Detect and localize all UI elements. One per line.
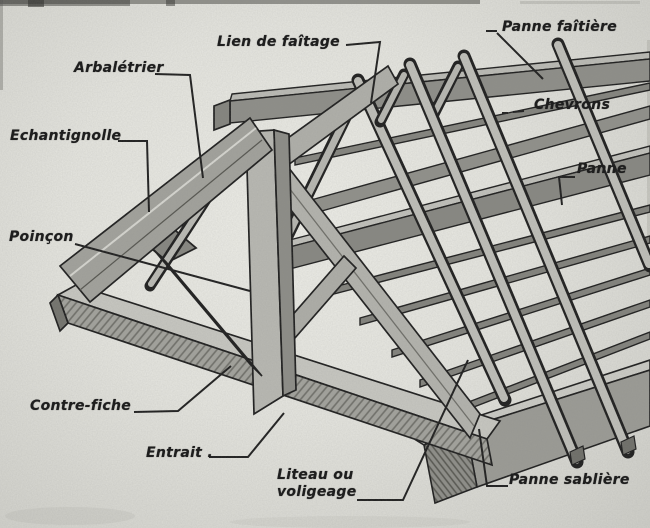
scan-grain-overlay — [0, 0, 650, 528]
label-liteau-line2: voligeage — [277, 484, 357, 500]
label-arbaletrier: Arbalétrier — [74, 60, 164, 77]
roof-truss-drawing — [0, 0, 650, 528]
label-chevrons: Chevrons — [534, 97, 610, 114]
label-contre-fiche: Contre-fiche — [30, 398, 131, 415]
scanned-roof-truss-figure: Lien de faîtage Panne faîtière Arbalétri… — [0, 0, 650, 528]
label-liteau-voligeage: Liteau ou voligeage — [277, 467, 367, 501]
label-panne: Panne — [577, 161, 627, 178]
label-poincon: Poinçon — [9, 229, 74, 246]
label-panne-faitiere: Panne faîtière — [502, 19, 617, 36]
label-liteau-line1: Liteau ou — [277, 467, 353, 483]
label-echantignolle: Echantignolle — [10, 128, 121, 145]
label-entrait: Entrait . — [146, 445, 213, 462]
label-panne-sabliere: Panne sablière — [509, 472, 630, 489]
label-lien-de-faitage: Lien de faîtage — [217, 34, 340, 51]
